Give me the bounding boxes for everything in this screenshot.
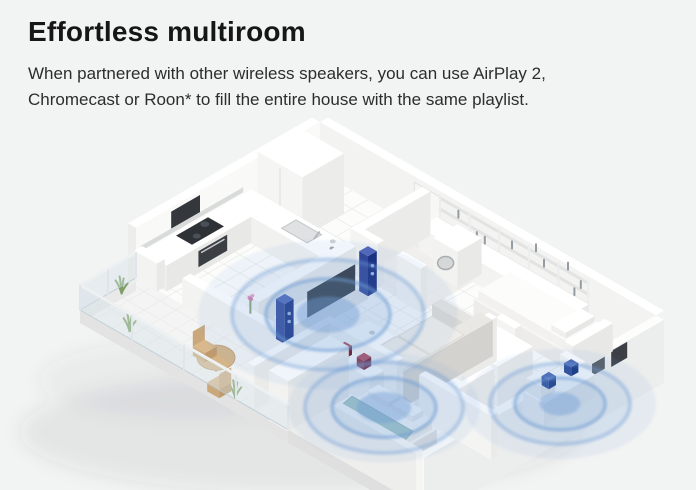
body-text: When partnered with other wireless speak…	[28, 61, 628, 114]
multiroom-marketing-section: Effortless multiroom When partnered with…	[0, 0, 696, 490]
copy-block: Effortless multiroom When partnered with…	[28, 16, 658, 114]
sound-waves-bedroom	[288, 352, 480, 463]
sound-waves-study	[464, 349, 656, 460]
apartment	[20, 117, 664, 490]
page-title: Effortless multiroom	[28, 16, 658, 48]
